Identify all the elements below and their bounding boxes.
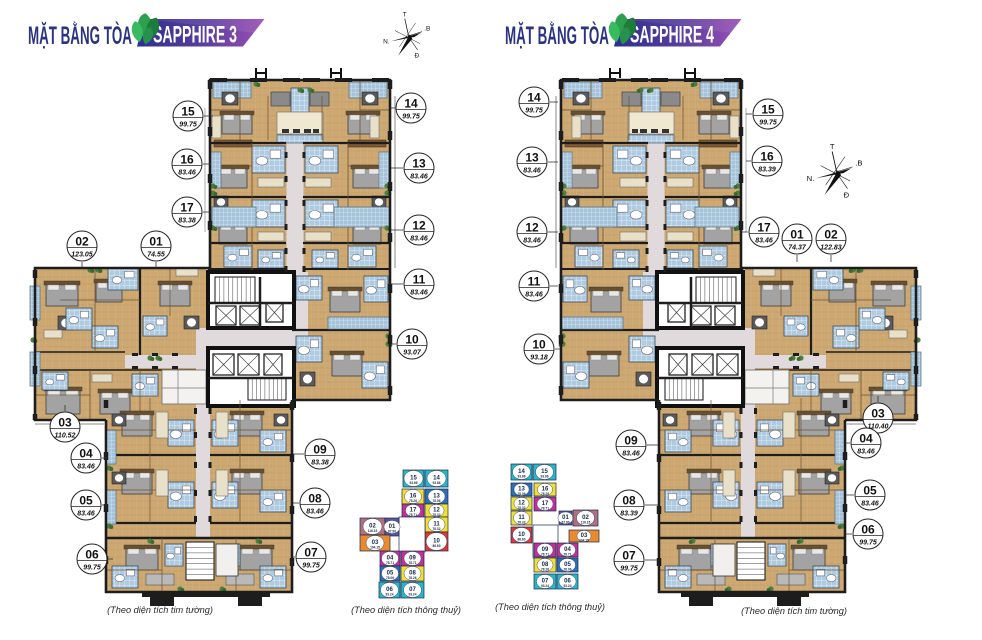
svg-text:(Theo diện tích tim tường): (Theo diện tích tim tường) <box>741 606 847 616</box>
svg-text:99.75: 99.75 <box>859 540 877 547</box>
svg-text:15: 15 <box>181 105 195 119</box>
svg-text:78.32: 78.32 <box>433 527 441 531</box>
svg-text:83.46: 83.46 <box>523 168 541 175</box>
svg-text:78.26: 78.26 <box>409 576 417 580</box>
svg-text:78.71: 78.71 <box>541 507 549 511</box>
svg-text:83.46: 83.46 <box>77 511 95 518</box>
svg-text:67.90: 67.90 <box>562 521 570 525</box>
svg-text:14: 14 <box>527 91 541 105</box>
svg-text:99.75: 99.75 <box>302 563 320 570</box>
svg-text:122.83: 122.83 <box>820 245 842 252</box>
svg-text:83.46: 83.46 <box>306 509 324 516</box>
svg-text:05: 05 <box>79 494 93 508</box>
svg-text:93.86: 93.86 <box>541 475 549 479</box>
svg-text:86.60: 86.60 <box>518 538 526 542</box>
svg-text:83.46: 83.46 <box>178 170 196 177</box>
svg-text:13: 13 <box>412 157 426 171</box>
svg-text:83.46: 83.46 <box>410 236 428 243</box>
svg-text:104.15: 104.15 <box>579 539 589 543</box>
svg-text:83.46: 83.46 <box>861 501 879 508</box>
svg-text:78.06: 78.06 <box>433 499 441 503</box>
svg-text:N.: N. <box>807 174 815 183</box>
svg-text:05: 05 <box>863 484 877 498</box>
svg-text:14: 14 <box>404 97 418 111</box>
svg-text:(Theo diện tích thông thuỷ): (Theo diện tích thông thuỷ) <box>351 605 461 615</box>
svg-text:99.75: 99.75 <box>759 120 777 127</box>
svg-text:99.75: 99.75 <box>402 114 420 121</box>
svg-text:67.90: 67.90 <box>388 530 396 534</box>
svg-text:93.24: 93.24 <box>564 584 572 588</box>
svg-text:02: 02 <box>824 228 838 242</box>
svg-text:10: 10 <box>532 338 546 352</box>
svg-text:(Theo diện tích thông thuỷ): (Theo diện tích thông thuỷ) <box>495 602 605 612</box>
svg-text:93.07: 93.07 <box>403 350 422 357</box>
svg-text:07: 07 <box>622 549 636 563</box>
svg-text:01: 01 <box>790 228 804 242</box>
svg-text:83.39: 83.39 <box>620 511 638 518</box>
svg-text:78.32: 78.32 <box>518 521 526 525</box>
svg-text:.B: .B <box>855 159 862 168</box>
svg-text:93.24: 93.24 <box>541 584 549 588</box>
svg-text:03: 03 <box>58 416 72 430</box>
svg-text:123.05: 123.05 <box>71 252 93 259</box>
svg-text:78.71: 78.71 <box>386 561 394 565</box>
svg-text:83.46: 83.46 <box>755 238 773 245</box>
svg-text:17: 17 <box>180 201 194 215</box>
svg-text:78.71: 78.71 <box>409 561 417 565</box>
svg-text:86.60: 86.60 <box>433 544 441 548</box>
svg-text:116.15: 116.15 <box>368 529 378 533</box>
svg-text:Đ: Đ <box>844 191 850 200</box>
svg-text:.B: .B <box>424 26 430 33</box>
svg-text:MẶT BẰNG TÒA: MẶT BẰNG TÒA <box>28 20 132 50</box>
svg-text:99.75: 99.75 <box>620 566 638 573</box>
svg-text:93.24: 93.24 <box>409 593 417 597</box>
svg-text:04: 04 <box>859 432 873 446</box>
svg-text:78.06: 78.06 <box>386 576 394 580</box>
svg-text:78.71: 78.71 <box>541 553 549 557</box>
svg-text:02: 02 <box>75 235 89 249</box>
svg-text:78.71: 78.71 <box>409 513 417 517</box>
svg-text:08: 08 <box>622 494 636 508</box>
svg-text:83.38: 83.38 <box>178 218 196 225</box>
svg-text:09: 09 <box>313 443 327 457</box>
svg-text:06: 06 <box>85 548 99 562</box>
svg-text:Đ: Đ <box>414 53 419 60</box>
svg-text:78.26: 78.26 <box>541 568 549 572</box>
svg-text:99.75: 99.75 <box>83 565 101 572</box>
svg-text:MẶT BẰNG TÒA: MẶT BẰNG TÒA <box>505 20 609 50</box>
svg-text:08: 08 <box>308 492 322 506</box>
svg-text:10: 10 <box>405 333 419 347</box>
svg-text:16: 16 <box>180 153 194 167</box>
svg-text:N.: N. <box>383 39 390 46</box>
svg-text:SAPPHIRE 4: SAPPHIRE 4 <box>630 22 714 49</box>
svg-text:13: 13 <box>525 151 539 165</box>
svg-text:17: 17 <box>757 221 771 235</box>
svg-text:83.46: 83.46 <box>77 464 95 471</box>
svg-text:12: 12 <box>525 221 539 235</box>
svg-text:93.86: 93.86 <box>433 481 441 485</box>
svg-text:99.75: 99.75 <box>525 108 543 115</box>
svg-text:03: 03 <box>871 407 885 421</box>
svg-text:16: 16 <box>760 150 774 164</box>
svg-text:83.46: 83.46 <box>857 449 875 456</box>
svg-text:78.32: 78.32 <box>518 506 526 510</box>
svg-text:83.46: 83.46 <box>622 451 640 458</box>
svg-text:78.26: 78.26 <box>541 492 549 496</box>
svg-text:11: 11 <box>413 273 426 287</box>
svg-text:78.06: 78.06 <box>518 492 526 496</box>
svg-text:74.55: 74.55 <box>147 252 165 259</box>
svg-text:12: 12 <box>412 219 426 233</box>
svg-text:(Theo diện tích tim tường): (Theo diện tích tim tường) <box>107 605 213 615</box>
svg-text:83.46: 83.46 <box>410 174 428 181</box>
svg-text:07: 07 <box>304 546 318 560</box>
svg-text:99.75: 99.75 <box>179 122 197 129</box>
svg-text:11: 11 <box>528 275 541 289</box>
svg-text:83.38: 83.38 <box>311 460 329 467</box>
svg-text:T: T <box>403 12 407 19</box>
svg-text:04: 04 <box>79 447 93 461</box>
svg-text:93.86: 93.86 <box>518 475 526 479</box>
svg-text:74.37: 74.37 <box>788 245 807 252</box>
svg-text:01: 01 <box>149 235 163 249</box>
svg-text:78.32: 78.32 <box>433 513 441 517</box>
svg-text:T: T <box>830 142 835 151</box>
svg-text:116.15: 116.15 <box>581 521 591 525</box>
svg-text:78.06: 78.06 <box>564 568 572 572</box>
svg-text:06: 06 <box>861 523 875 537</box>
svg-text:93.86: 93.86 <box>410 481 418 485</box>
svg-text:15: 15 <box>761 103 775 117</box>
svg-text:93.24: 93.24 <box>386 593 394 597</box>
svg-text:83.46: 83.46 <box>523 238 541 245</box>
svg-text:110.52: 110.52 <box>55 433 76 440</box>
svg-text:104.15: 104.15 <box>370 546 380 550</box>
svg-text:SAPPHIRE 3: SAPPHIRE 3 <box>153 22 237 49</box>
svg-text:78.26: 78.26 <box>409 499 417 503</box>
svg-text:93.18: 93.18 <box>530 355 548 362</box>
svg-text:83.46: 83.46 <box>410 290 428 297</box>
svg-text:09: 09 <box>624 434 638 448</box>
svg-text:83.39: 83.39 <box>758 167 776 174</box>
svg-text:78.71: 78.71 <box>564 553 572 557</box>
svg-text:83.46: 83.46 <box>525 292 543 299</box>
